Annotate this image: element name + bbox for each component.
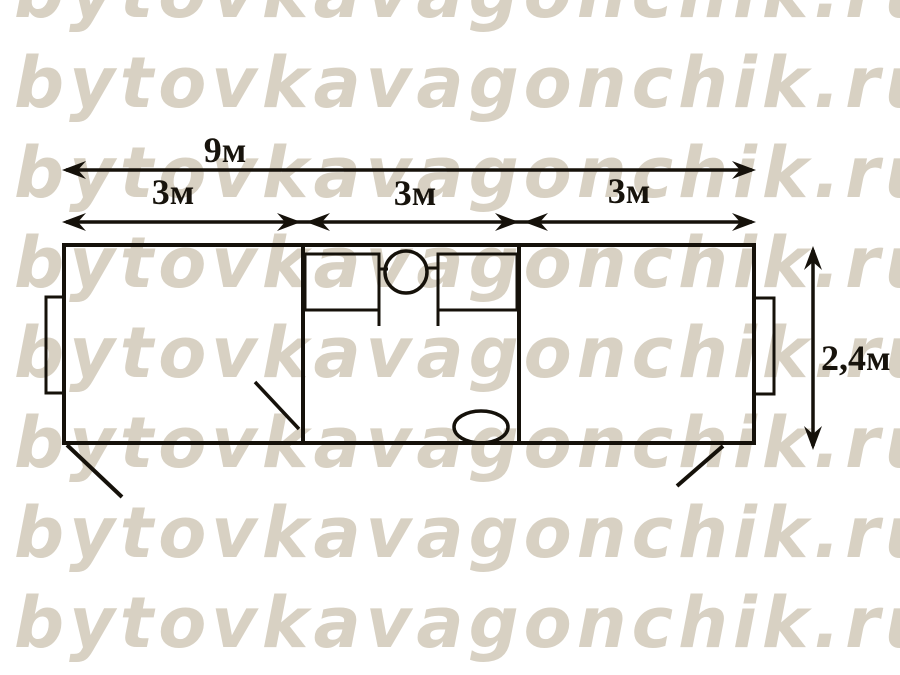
section-label-3: 3м — [608, 171, 651, 211]
dimension-sections: 3м 3м 3м — [62, 171, 756, 231]
width-label: 2,4м — [821, 338, 891, 378]
cabin-outline — [64, 245, 754, 443]
section-label-2: 3м — [394, 173, 437, 213]
diagram-page: bytovkavagonchik.ru bytovkavagonchik.ru … — [0, 0, 900, 675]
toilet-oval — [454, 411, 508, 443]
middle-room-fixtures — [305, 251, 517, 443]
counter-left — [305, 254, 379, 310]
sink-circle — [385, 251, 427, 293]
window-left — [46, 297, 64, 393]
door-swings — [67, 382, 723, 497]
section-label-1: 3м — [152, 172, 195, 212]
dimension-width: 2,4м — [804, 246, 891, 450]
counter-right — [438, 254, 517, 310]
total-length-label: 9м — [204, 130, 247, 170]
door-swing-exterior-right — [677, 446, 723, 486]
floor-plan-diagram: 9м 3м 3м 3м 2,4м — [0, 0, 900, 675]
window-right — [754, 298, 774, 394]
cabin-body — [46, 245, 774, 443]
door-swing-exterior-left — [67, 445, 122, 497]
door-swing-interior — [255, 382, 299, 429]
